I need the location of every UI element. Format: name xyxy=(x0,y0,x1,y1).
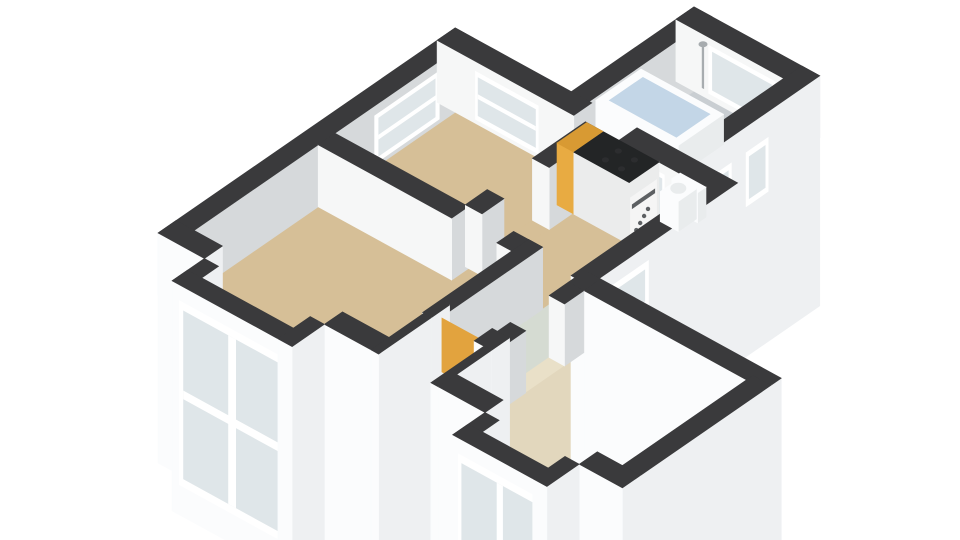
floorplan-image xyxy=(0,0,960,540)
wall-extension-back-dot-0 xyxy=(699,41,708,47)
bay-window-left-side-b-face xyxy=(292,324,324,540)
kitchen-counter-dot-1 xyxy=(615,148,622,153)
partition-backbed-kitchen-a-face xyxy=(465,205,482,276)
kitchen-cabinet-tall-face xyxy=(557,143,573,214)
kitchen-counter-dot-3 xyxy=(631,157,638,162)
kitchen-counter-dot-4 xyxy=(646,207,650,211)
kitchen-counter-dot-0 xyxy=(602,157,609,162)
toilet-cistern-face xyxy=(698,187,706,223)
porch-side-wall-left xyxy=(371,313,432,540)
kitchen-counter-dot-2 xyxy=(618,166,625,171)
toilet-bowl-dot-0 xyxy=(670,183,686,194)
floorplan-3d-svg xyxy=(0,0,960,540)
partition-living-north-b xyxy=(549,282,584,366)
partition-backbed-kitchen-b-face xyxy=(532,158,549,229)
bay-window-left-side-b xyxy=(278,317,325,540)
kitchen-counter-dot-6 xyxy=(638,221,642,225)
bay-window-right-side-b-face xyxy=(533,479,547,540)
kitchen-counter-dot-5 xyxy=(642,214,646,218)
wall-front-2-face xyxy=(324,324,371,540)
porch-side-wall-left-face xyxy=(379,318,432,540)
partition-living-north-b-face xyxy=(549,296,564,367)
wall-extension-back-panel-2 xyxy=(702,46,704,89)
porch-side-wall-right-face xyxy=(431,383,439,540)
porch-side-wall-left-face xyxy=(371,350,379,540)
bay-window-left-side-b-face xyxy=(278,339,292,540)
bay-window-left-front-panel-3 xyxy=(229,336,236,508)
bay-window-right-front-panel-3 xyxy=(497,483,503,540)
